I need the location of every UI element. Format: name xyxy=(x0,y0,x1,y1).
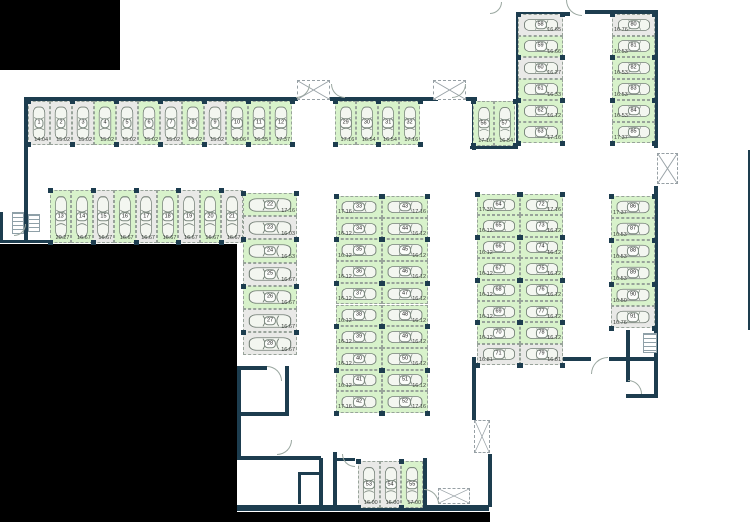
parking-spot-50[interactable]: 5016.12 xyxy=(382,348,428,370)
parking-spot-65[interactable]: 6516.12 xyxy=(477,215,520,236)
wall-segment xyxy=(285,366,289,414)
column-post xyxy=(294,191,299,196)
parking-spot-84[interactable]: 8416.53 xyxy=(612,100,655,122)
spot-dimension: 16.67 xyxy=(98,236,112,242)
spot-dimension: 16.12 xyxy=(338,275,352,281)
parking-spot-82[interactable]: 8216.53 xyxy=(612,57,655,79)
column-post xyxy=(246,99,251,104)
column-post xyxy=(202,142,207,147)
spot-number: 77 xyxy=(535,307,547,317)
column-post xyxy=(134,240,139,245)
column-post xyxy=(380,324,385,329)
spot-dimension: 16.76 xyxy=(614,28,628,34)
spot-number: 64 xyxy=(492,200,504,210)
spot-dimension: 16.12 xyxy=(412,340,426,346)
spot-number: 1 xyxy=(34,118,43,128)
wall-segment xyxy=(237,456,321,460)
spot-dimension: 15.02 xyxy=(166,138,180,144)
parking-spot-60[interactable]: 6016.27 xyxy=(518,57,563,79)
parking-spot-11[interactable]: 1116.35 xyxy=(248,101,270,145)
spot-number: 80 xyxy=(627,20,639,30)
spot-dimension: 15.02 xyxy=(144,138,158,144)
outside-area xyxy=(0,0,120,70)
column-post xyxy=(425,411,430,416)
parking-spot-64[interactable]: 6417.30 xyxy=(477,194,520,215)
wall-segment xyxy=(237,366,267,370)
column-post xyxy=(518,363,523,368)
spot-dimension: 16.12 xyxy=(338,297,352,303)
parking-spot-16[interactable]: 1616.67 xyxy=(114,190,135,243)
parking-spot-49[interactable]: 4916.12 xyxy=(382,326,428,348)
parking-spot-78[interactable]: 7816.12 xyxy=(520,322,563,343)
column-post xyxy=(610,12,615,17)
parking-spot-52[interactable]: 5217.16 xyxy=(382,391,428,413)
spot-number: 76 xyxy=(535,286,547,296)
door-arc-icon xyxy=(628,380,642,394)
column-post xyxy=(333,142,338,147)
spot-dimension: 15.02 xyxy=(122,138,136,144)
parking-spot-56[interactable]: 5617.16 xyxy=(473,101,494,146)
parking-spot-68[interactable]: 6816.12 xyxy=(477,280,520,301)
spot-number: 6 xyxy=(144,118,153,128)
spot-number: 23 xyxy=(264,223,276,233)
parking-spot-79[interactable]: 7916.81 xyxy=(520,344,563,365)
parking-spot-77[interactable]: 7716.12 xyxy=(520,301,563,322)
spot-dimension: 16.67 xyxy=(205,236,219,242)
parking-spot-35[interactable]: 3516.12 xyxy=(336,239,382,261)
column-post xyxy=(516,12,521,17)
spot-number: 49 xyxy=(399,332,411,342)
spot-dimension: 16.12 xyxy=(338,384,352,390)
parking-spot-66[interactable]: 6616.12 xyxy=(477,237,520,258)
parking-spot-70[interactable]: 7016.12 xyxy=(477,322,520,343)
parking-spot-20[interactable]: 2016.67 xyxy=(200,190,221,243)
parking-spot-37[interactable]: 3716.12 xyxy=(336,283,382,305)
column-post xyxy=(475,235,480,240)
spot-dimension: 16.12 xyxy=(479,293,493,299)
column-post xyxy=(560,98,565,103)
column-post xyxy=(609,282,614,287)
column-post xyxy=(399,459,404,464)
spot-number: 79 xyxy=(535,350,547,360)
spot-number: 47 xyxy=(399,289,411,299)
stairs-icon xyxy=(643,333,657,353)
spot-dimension: 16.81 xyxy=(479,358,493,364)
spot-number: 45 xyxy=(399,245,411,255)
parking-spot-72[interactable]: 7217.16 xyxy=(520,194,563,215)
parking-spot-38[interactable]: 3816.12 xyxy=(336,305,382,327)
column-post xyxy=(609,326,614,331)
column-post xyxy=(158,142,163,147)
spot-number: 46 xyxy=(399,267,411,277)
parking-spot-18[interactable]: 1816.67 xyxy=(157,190,178,243)
spot-number: 44 xyxy=(399,224,411,234)
spot-number: 32 xyxy=(403,118,415,128)
outside-area xyxy=(237,512,490,522)
parking-spot-73[interactable]: 7316.12 xyxy=(520,215,563,236)
parking-spot-22[interactable]: 2217.16 xyxy=(243,193,297,216)
spot-number: 18 xyxy=(162,212,174,222)
spot-number: 59 xyxy=(534,42,546,52)
spot-dimension: 16.12 xyxy=(547,293,561,299)
parking-spot-85[interactable]: 8517.37 xyxy=(612,122,655,144)
spot-dimension: 16.12 xyxy=(547,336,561,342)
wall-segment xyxy=(470,146,518,149)
column-post xyxy=(471,99,476,104)
spot-dimension: 17.16 xyxy=(412,210,426,216)
spot-dimension: 16.12 xyxy=(338,254,352,260)
spot-number: 78 xyxy=(535,328,547,338)
column-post xyxy=(609,238,614,243)
spot-dimension: 16.00 xyxy=(364,501,378,507)
parking-spot-57[interactable]: 5716.54 xyxy=(494,101,515,146)
parking-spot-48[interactable]: 4816.12 xyxy=(382,305,428,327)
column-post xyxy=(219,188,224,193)
column-post xyxy=(380,237,385,242)
spot-number: 5 xyxy=(122,118,131,128)
spot-number: 83 xyxy=(627,85,639,95)
parking-spot-24[interactable]: 2416.53 xyxy=(243,239,297,262)
spot-dimension: 16.12 xyxy=(338,319,352,325)
parking-spot-63[interactable]: 6317.16 xyxy=(518,122,563,144)
parking-spot-10[interactable]: 1016.06 xyxy=(226,101,248,145)
door-arc-icon xyxy=(591,357,608,374)
spot-dimension: 15.02 xyxy=(100,138,114,144)
column-post xyxy=(380,368,385,373)
spot-dimension: 16.12 xyxy=(479,229,493,235)
spot-dimension: 16.12 xyxy=(547,229,561,235)
wall-segment xyxy=(298,472,301,504)
parking-spot-14[interactable]: 1416.67 xyxy=(71,190,92,243)
parking-spot-13[interactable]: 1320.27 xyxy=(50,190,71,243)
parking-spot-7[interactable]: 715.02 xyxy=(160,101,182,145)
column-post xyxy=(294,284,299,289)
column-post xyxy=(425,194,430,199)
column-post xyxy=(334,368,339,373)
parking-spot-61[interactable]: 6116.33 xyxy=(518,79,563,101)
spot-dimension: 16.53 xyxy=(614,93,628,99)
spot-dimension: 16.12 xyxy=(479,272,493,278)
spot-number: 14 xyxy=(76,212,88,222)
spot-dimension: 16.54 xyxy=(383,138,397,144)
column-post xyxy=(158,99,163,104)
door-arc-icon xyxy=(490,2,502,14)
column-post xyxy=(560,12,565,17)
spot-dimension: 16.53 xyxy=(613,233,627,239)
column-post xyxy=(70,99,75,104)
parking-spot-19[interactable]: 1916.67 xyxy=(178,190,199,243)
spot-dimension: 17.37 xyxy=(276,138,290,144)
spot-number: 19 xyxy=(183,212,195,222)
parking-spot-12[interactable]: 1217.37 xyxy=(270,101,292,145)
parking-spot-36[interactable]: 3616.12 xyxy=(336,261,382,283)
spot-dimension: 16.12 xyxy=(547,272,561,278)
column-post xyxy=(609,194,614,199)
column-post xyxy=(471,143,476,148)
spot-number: 26 xyxy=(264,293,276,303)
spot-dimension: 17.16 xyxy=(338,210,352,216)
parking-spot-2[interactable]: 215.02 xyxy=(50,101,72,145)
parking-spot-21[interactable]: 2116.67 xyxy=(221,190,242,243)
spot-number: 53 xyxy=(363,480,375,490)
column-post xyxy=(290,99,295,104)
parking-spot-51[interactable]: 5116.12 xyxy=(382,370,428,392)
parking-spot-43[interactable]: 4317.16 xyxy=(382,196,428,218)
spot-number: 54 xyxy=(384,480,396,490)
parking-spot-45[interactable]: 4516.12 xyxy=(382,239,428,261)
spot-dimension: 16.76 xyxy=(613,321,627,327)
spot-number: 40 xyxy=(353,354,365,364)
spot-dimension: 16.67 xyxy=(77,236,91,242)
spot-number: 28 xyxy=(264,339,276,349)
column-post xyxy=(475,278,480,283)
spot-number: 84 xyxy=(627,106,639,116)
column-post xyxy=(334,194,339,199)
spot-dimension: 15.02 xyxy=(210,138,224,144)
column-post xyxy=(518,278,523,283)
spot-number: 42 xyxy=(353,397,365,407)
parking-spot-55[interactable]: 5517.00 xyxy=(401,461,423,508)
parking-spot-34[interactable]: 3416.12 xyxy=(336,218,382,240)
parking-spot-42[interactable]: 4217.16 xyxy=(336,391,382,413)
spot-dimension: 16.12 xyxy=(412,297,426,303)
column-post xyxy=(70,142,75,147)
column-post xyxy=(114,99,119,104)
column-post xyxy=(425,368,430,373)
spot-number: 7 xyxy=(166,118,175,128)
spot-number: 30 xyxy=(361,118,373,128)
column-post xyxy=(518,320,523,325)
spot-dimension: 16.12 xyxy=(338,232,352,238)
spot-number: 68 xyxy=(492,286,504,296)
spot-number: 88 xyxy=(627,246,639,256)
spot-number: 66 xyxy=(492,243,504,253)
spot-number: 31 xyxy=(382,118,394,128)
parking-spot-17[interactable]: 1716.67 xyxy=(136,190,157,243)
parking-spot-83[interactable]: 8316.53 xyxy=(612,79,655,101)
spot-dimension: 16.53 xyxy=(281,255,295,261)
spot-dimension: 15.02 xyxy=(78,138,92,144)
spot-number: 58 xyxy=(534,20,546,30)
column-post xyxy=(334,281,339,286)
column-post xyxy=(516,141,521,146)
spot-number: 33 xyxy=(353,202,365,212)
column-post xyxy=(176,188,181,193)
spot-dimension: 16.54 xyxy=(362,138,376,144)
parking-spot-29[interactable]: 2917.16 xyxy=(335,101,356,145)
parking-spot-1[interactable]: 114.04 xyxy=(28,101,50,145)
column-post xyxy=(652,194,657,199)
column-post xyxy=(48,240,53,245)
column-post xyxy=(652,98,657,103)
spot-number: 37 xyxy=(353,289,365,299)
parking-spot-69[interactable]: 6916.12 xyxy=(477,301,520,322)
spot-dimension: 16.12 xyxy=(412,362,426,368)
wall-segment xyxy=(626,394,658,398)
door-arc-icon xyxy=(267,366,282,381)
column-post xyxy=(48,188,53,193)
spot-dimension: 16.81 xyxy=(547,358,561,364)
parking-spot-58[interactable]: 5816.65 xyxy=(518,14,563,36)
wall-segment xyxy=(298,472,320,475)
parking-spot-41[interactable]: 4116.12 xyxy=(336,370,382,392)
parking-spot-89[interactable]: 8916.53 xyxy=(611,262,655,284)
parking-spot-8[interactable]: 815.02 xyxy=(182,101,204,145)
parking-spot-62[interactable]: 6216.12 xyxy=(518,100,563,122)
parking-spot-88[interactable]: 8816.53 xyxy=(611,240,655,262)
spot-number: 67 xyxy=(492,264,504,274)
parking-spot-53[interactable]: 5316.00 xyxy=(358,461,380,508)
spot-number: 39 xyxy=(353,332,365,342)
parking-spot-3[interactable]: 315.02 xyxy=(72,101,94,145)
spot-dimension: 16.53 xyxy=(614,50,628,56)
parking-spot-74[interactable]: 7416.12 xyxy=(520,237,563,258)
column-post xyxy=(333,99,338,104)
spot-number: 24 xyxy=(264,246,276,256)
spot-number: 22 xyxy=(264,200,276,210)
spot-number: 51 xyxy=(399,376,411,386)
parking-spot-23[interactable]: 2316.03 xyxy=(243,216,297,239)
parking-spot-31[interactable]: 3116.54 xyxy=(378,101,399,145)
door-arc-icon xyxy=(277,440,292,455)
column-post xyxy=(518,192,523,197)
parking-spot-25[interactable]: 2516.67 xyxy=(243,263,297,286)
spot-number: 36 xyxy=(353,267,365,277)
parking-spot-90[interactable]: 9016.50 xyxy=(611,284,655,306)
spot-dimension: 20.27 xyxy=(56,236,70,242)
spot-dimension: 16.53 xyxy=(613,277,627,283)
spot-dimension: 16.67 xyxy=(163,236,177,242)
parking-spot-4[interactable]: 415.02 xyxy=(94,101,116,145)
parking-spot-6[interactable]: 615.02 xyxy=(138,101,160,145)
spot-dimension: 17.37 xyxy=(613,211,627,217)
parking-spot-87[interactable]: 8716.53 xyxy=(611,218,655,240)
column-post xyxy=(241,191,246,196)
column-post xyxy=(241,237,246,242)
spot-dimension: 16.67 xyxy=(141,236,155,242)
spot-number: 57 xyxy=(498,119,510,129)
spot-number: 38 xyxy=(353,311,365,321)
parking-spot-40[interactable]: 4016.12 xyxy=(336,348,382,370)
parking-spot-44[interactable]: 4416.12 xyxy=(382,218,428,240)
spot-dimension: 16.53 xyxy=(613,255,627,261)
column-post xyxy=(610,55,615,60)
parking-spot-54[interactable]: 5416.00 xyxy=(380,461,402,508)
column-post xyxy=(219,240,224,245)
spot-number: 61 xyxy=(534,85,546,95)
column-post xyxy=(652,326,657,331)
wall-segment xyxy=(609,357,658,361)
column-post xyxy=(425,324,430,329)
spot-dimension: 16.54 xyxy=(499,139,513,145)
spot-dimension: 16.27 xyxy=(547,71,561,77)
column-post xyxy=(425,237,430,242)
parking-spot-15[interactable]: 1516.67 xyxy=(93,190,114,243)
column-post xyxy=(380,281,385,286)
parking-spot-59[interactable]: 5916.66 xyxy=(518,36,563,58)
spot-number: 27 xyxy=(264,316,276,326)
column-post xyxy=(399,505,404,510)
wall-segment xyxy=(237,412,289,416)
parking-spot-47[interactable]: 4716.12 xyxy=(382,283,428,305)
spot-dimension: 16.53 xyxy=(614,114,628,120)
parking-spot-91[interactable]: 9116.76 xyxy=(611,306,655,328)
parking-spot-67[interactable]: 6716.12 xyxy=(477,258,520,279)
spot-dimension: 15.02 xyxy=(188,138,202,144)
column-post xyxy=(290,142,295,147)
spot-number: 56 xyxy=(477,119,489,129)
parking-spot-39[interactable]: 3916.12 xyxy=(336,326,382,348)
spot-number: 71 xyxy=(492,350,504,360)
parking-spot-71[interactable]: 7116.81 xyxy=(477,344,520,365)
spot-number: 21 xyxy=(226,212,238,222)
parking-spot-32[interactable]: 3217.16 xyxy=(399,101,420,145)
spot-number: 91 xyxy=(627,312,639,322)
parking-spot-30[interactable]: 3016.54 xyxy=(356,101,377,145)
parking-spot-81[interactable]: 8116.53 xyxy=(612,36,655,58)
spot-number: 20 xyxy=(204,212,216,222)
column-post xyxy=(652,12,657,17)
column-post xyxy=(425,281,430,286)
parking-spot-76[interactable]: 7616.12 xyxy=(520,280,563,301)
parking-spot-86[interactable]: 8617.37 xyxy=(611,196,655,218)
parking-spot-80[interactable]: 8016.76 xyxy=(612,14,655,36)
spot-dimension: 17.37 xyxy=(614,136,628,142)
spot-dimension: 17.16 xyxy=(547,136,561,142)
spot-dimension: 16.12 xyxy=(547,114,561,120)
parking-spot-46[interactable]: 4616.12 xyxy=(382,261,428,283)
column-post xyxy=(356,505,361,510)
spot-dimension: 17.16 xyxy=(547,208,561,214)
spot-number: 12 xyxy=(275,118,287,128)
spot-number: 29 xyxy=(340,118,352,128)
parking-spot-26[interactable]: 2616.67 xyxy=(243,286,297,309)
spot-number: 3 xyxy=(78,118,87,128)
column-post xyxy=(560,278,565,283)
spot-number: 4 xyxy=(100,118,109,128)
spot-number: 48 xyxy=(399,311,411,321)
spot-dimension: 17.16 xyxy=(338,405,352,411)
spot-dimension: 16.12 xyxy=(412,254,426,260)
column-post xyxy=(652,282,657,287)
column-post xyxy=(91,188,96,193)
parking-spot-9[interactable]: 915.02 xyxy=(204,101,226,145)
spot-number: 75 xyxy=(535,264,547,274)
column-post xyxy=(376,99,381,104)
spot-number: 81 xyxy=(627,42,639,52)
spot-dimension: 16.67 xyxy=(184,236,198,242)
parking-spot-5[interactable]: 515.02 xyxy=(116,101,138,145)
spot-number: 17 xyxy=(140,212,152,222)
spot-dimension: 16.50 xyxy=(613,299,627,305)
column-post xyxy=(241,284,246,289)
parking-spot-33[interactable]: 3317.16 xyxy=(336,196,382,218)
spot-number: 52 xyxy=(399,397,411,407)
spot-dimension: 16.12 xyxy=(412,319,426,325)
spot-dimension: 17.16 xyxy=(478,139,492,145)
parking-spot-28[interactable]: 2816.67 xyxy=(243,332,297,355)
spot-dimension: 16.12 xyxy=(547,251,561,257)
spot-dimension: 15.02 xyxy=(56,138,70,144)
column-post xyxy=(26,142,31,147)
column-post xyxy=(334,237,339,242)
column-post xyxy=(560,55,565,60)
column-post xyxy=(294,237,299,242)
parking-spot-27[interactable]: 2716.67 xyxy=(243,309,297,332)
spot-dimension: 16.35 xyxy=(254,138,268,144)
parking-spot-75[interactable]: 7516.12 xyxy=(520,258,563,279)
spot-number: 50 xyxy=(399,354,411,364)
